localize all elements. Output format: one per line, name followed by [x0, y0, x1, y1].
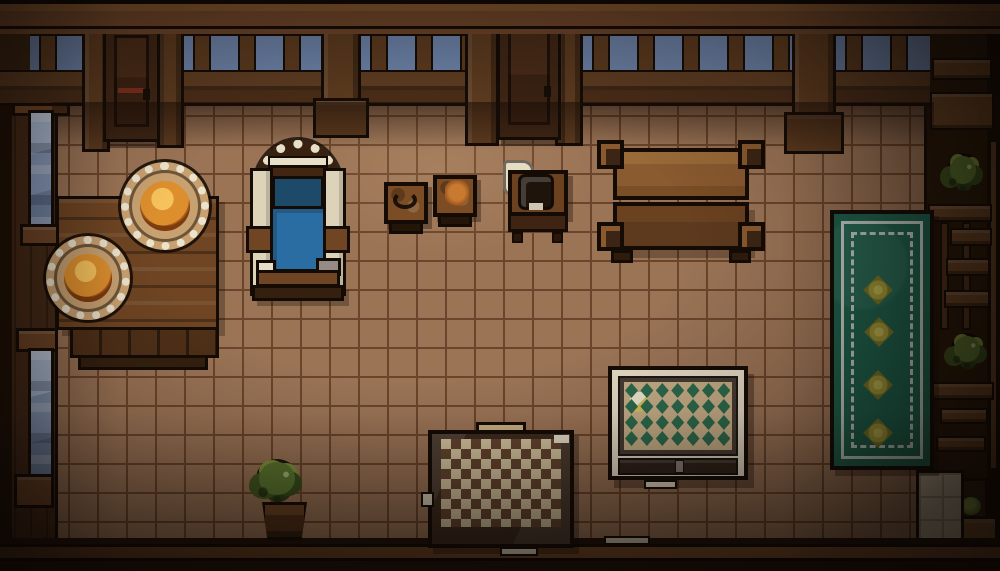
- nightstand[interactable]: [502, 158, 572, 244]
- nightstand-leg: [552, 232, 563, 243]
- rug-diamond: [671, 399, 684, 414]
- rug-bottom-divider: [675, 460, 684, 473]
- rug-diamond: [702, 415, 715, 430]
- chair-base: [252, 285, 344, 301]
- rug-diamond: [640, 415, 653, 430]
- shelf-plank: [932, 58, 992, 80]
- rug-diamond: [671, 415, 684, 430]
- rug-tab: [604, 536, 650, 545]
- large-table[interactable]: [597, 140, 765, 268]
- table-foot: [611, 250, 633, 263]
- food: [64, 254, 112, 302]
- rug-diamond: [717, 399, 730, 414]
- rug-flower: [865, 276, 892, 303]
- nightstand-front: [508, 216, 568, 232]
- rug-diamond: [687, 415, 700, 430]
- rug-diamond: [656, 415, 669, 430]
- bowl: [393, 191, 417, 209]
- table-lower-planks: [613, 202, 749, 250]
- shelf-plank: [930, 92, 994, 130]
- rug-diamond: [717, 415, 730, 430]
- chair-cushion-upper: [272, 176, 324, 210]
- rug-diamond: [687, 383, 700, 398]
- stool-left[interactable]: [384, 182, 430, 236]
- window-sill: [14, 474, 54, 508]
- window-lower: [28, 348, 54, 480]
- window-sill: [20, 224, 60, 246]
- table-corner-post: [597, 140, 624, 169]
- balustrade-sky-gap: [30, 34, 82, 72]
- table-corner-post: [738, 140, 765, 169]
- shelf-plant-upper[interactable]: [936, 146, 988, 204]
- table-corner-post: [597, 222, 624, 251]
- balustrade-sky-gap: [361, 34, 465, 72]
- rug-diamond: [687, 399, 700, 414]
- rug-diamond: [656, 399, 669, 414]
- stool-base: [438, 217, 472, 227]
- window-upper: [28, 110, 54, 228]
- tavern-room-scene: [0, 0, 1000, 571]
- rug-diamond: [687, 431, 700, 446]
- balustrade-sky-gap: [583, 34, 792, 72]
- shelf-plank: [928, 204, 992, 222]
- shelf-plant-lower[interactable]: [940, 326, 992, 380]
- shelf-plank: [936, 436, 986, 452]
- balustrade-sky-gap: [184, 34, 321, 72]
- chair-armrest: [246, 226, 273, 253]
- rug-bottom-band: [618, 458, 738, 475]
- shelf-rail: [940, 222, 949, 330]
- rug-diamond: [625, 431, 638, 446]
- rug-flower: [866, 319, 893, 346]
- plate-of-food[interactable]: [121, 162, 209, 250]
- rug-diamond: [702, 399, 715, 414]
- stool-base: [389, 224, 423, 234]
- shelf-plank: [950, 228, 992, 246]
- rug-tab: [476, 422, 526, 433]
- rug-flower: [865, 420, 892, 447]
- shelf-plank: [940, 408, 988, 424]
- shelf-plank: [930, 382, 994, 400]
- rug-diamond: [717, 431, 730, 446]
- balustrade-sky-gap: [836, 34, 930, 72]
- stool-right[interactable]: [433, 175, 479, 229]
- rug-checker-field: [441, 439, 561, 527]
- rug-accent: [554, 435, 569, 443]
- chair-armrest: [323, 226, 350, 253]
- door-handle: [143, 89, 150, 100]
- runner-rug[interactable]: [830, 210, 934, 470]
- rug-diamond: [640, 431, 653, 446]
- rug-diamond: [625, 415, 638, 430]
- kettle-label: [529, 203, 543, 210]
- right-wall-trim: [989, 140, 998, 470]
- diamond-rug[interactable]: [608, 366, 748, 480]
- checker-rug[interactable]: [428, 430, 574, 548]
- dining-table[interactable]: [56, 196, 219, 372]
- armchair[interactable]: [246, 140, 350, 302]
- rug-diamond: [656, 431, 669, 446]
- rug-diamond: [671, 431, 684, 446]
- shelf-plank: [946, 258, 990, 276]
- table-feet: [78, 358, 208, 370]
- table-upper-planks: [613, 148, 749, 200]
- rug-flower: [865, 372, 892, 399]
- rug-diamond: [717, 383, 730, 398]
- wall-shadow: [52, 102, 934, 150]
- bush-leaves: [240, 450, 312, 518]
- food-item: [445, 180, 469, 208]
- rug-diamond: [671, 383, 684, 398]
- rug-field: [624, 382, 732, 450]
- table-skirt: [70, 330, 219, 358]
- rug-tab: [500, 547, 538, 556]
- nightstand-leg: [512, 232, 523, 243]
- food: [140, 181, 190, 231]
- rug-tab: [644, 480, 677, 489]
- door-handle: [544, 86, 551, 97]
- table-foot: [729, 250, 751, 263]
- top-beam: [0, 0, 1000, 34]
- door-stripe: [118, 88, 144, 93]
- shelf-plank: [944, 290, 990, 308]
- rug-diamond: [656, 383, 669, 398]
- table-corner-post: [738, 222, 765, 251]
- rug-diamond: [702, 431, 715, 446]
- plant-leaves: [961, 497, 981, 515]
- plate-of-food[interactable]: [46, 236, 130, 320]
- rug-diamond: [702, 383, 715, 398]
- potted-bush[interactable]: [240, 450, 318, 542]
- rug-accent: [421, 492, 434, 507]
